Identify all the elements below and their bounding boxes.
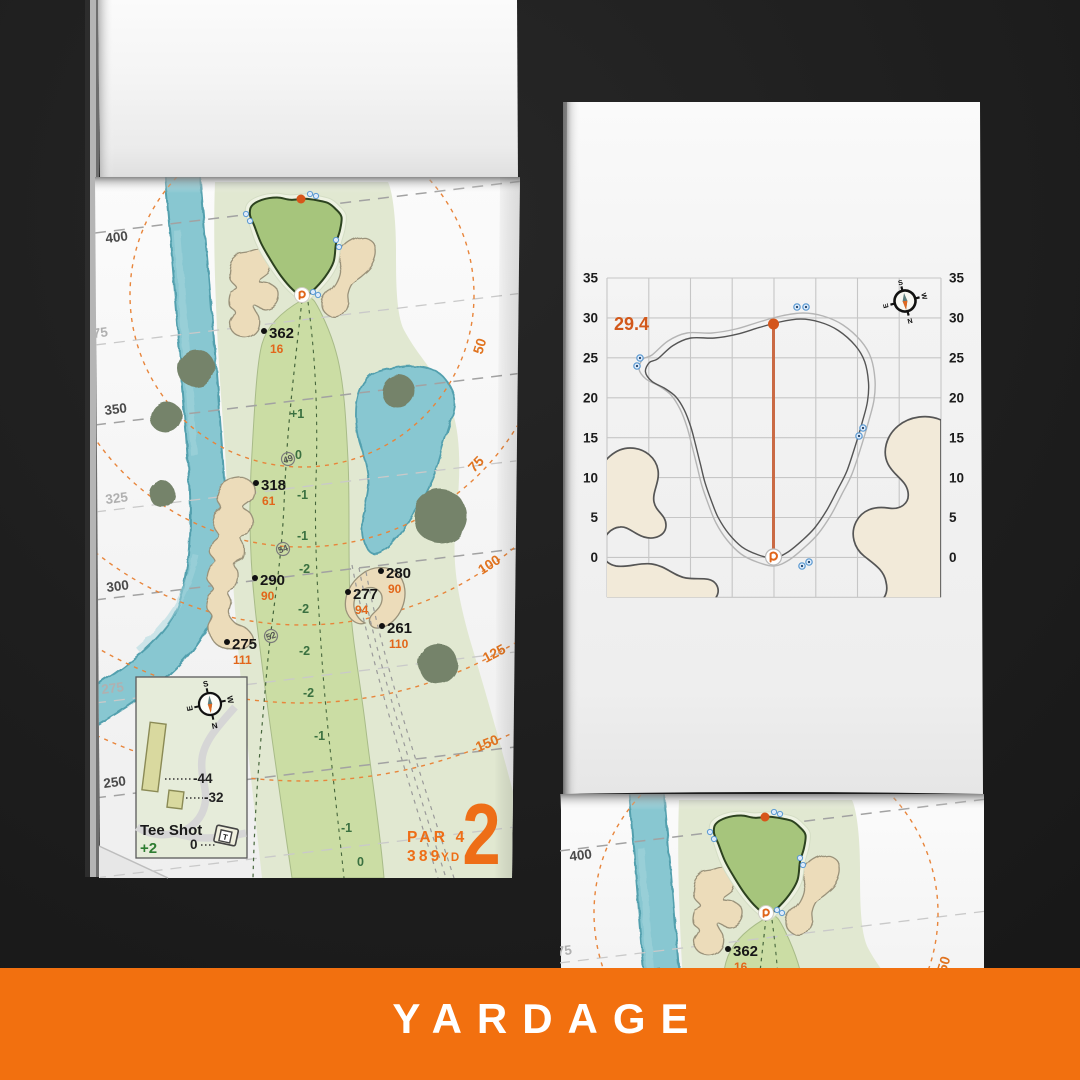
svg-text:35: 35 — [949, 271, 965, 286]
svg-text:20: 20 — [949, 391, 964, 406]
svg-text:30: 30 — [949, 311, 964, 326]
svg-text:25: 25 — [949, 351, 965, 366]
svg-text:35: 35 — [583, 271, 599, 286]
svg-text:25: 25 — [583, 351, 599, 366]
svg-text:YARDAGE: YARDAGE — [392, 995, 703, 1042]
svg-text:0: 0 — [590, 550, 598, 565]
svg-text:15: 15 — [949, 431, 965, 446]
svg-text:0: 0 — [949, 550, 957, 565]
svg-text:30: 30 — [583, 311, 598, 326]
svg-text:29.4: 29.4 — [614, 314, 649, 334]
svg-text:10: 10 — [949, 471, 964, 486]
svg-text:10: 10 — [583, 471, 598, 486]
svg-text:15: 15 — [583, 431, 599, 446]
svg-text:20: 20 — [583, 391, 598, 406]
svg-text:5: 5 — [949, 510, 957, 525]
svg-text:5: 5 — [590, 510, 598, 525]
